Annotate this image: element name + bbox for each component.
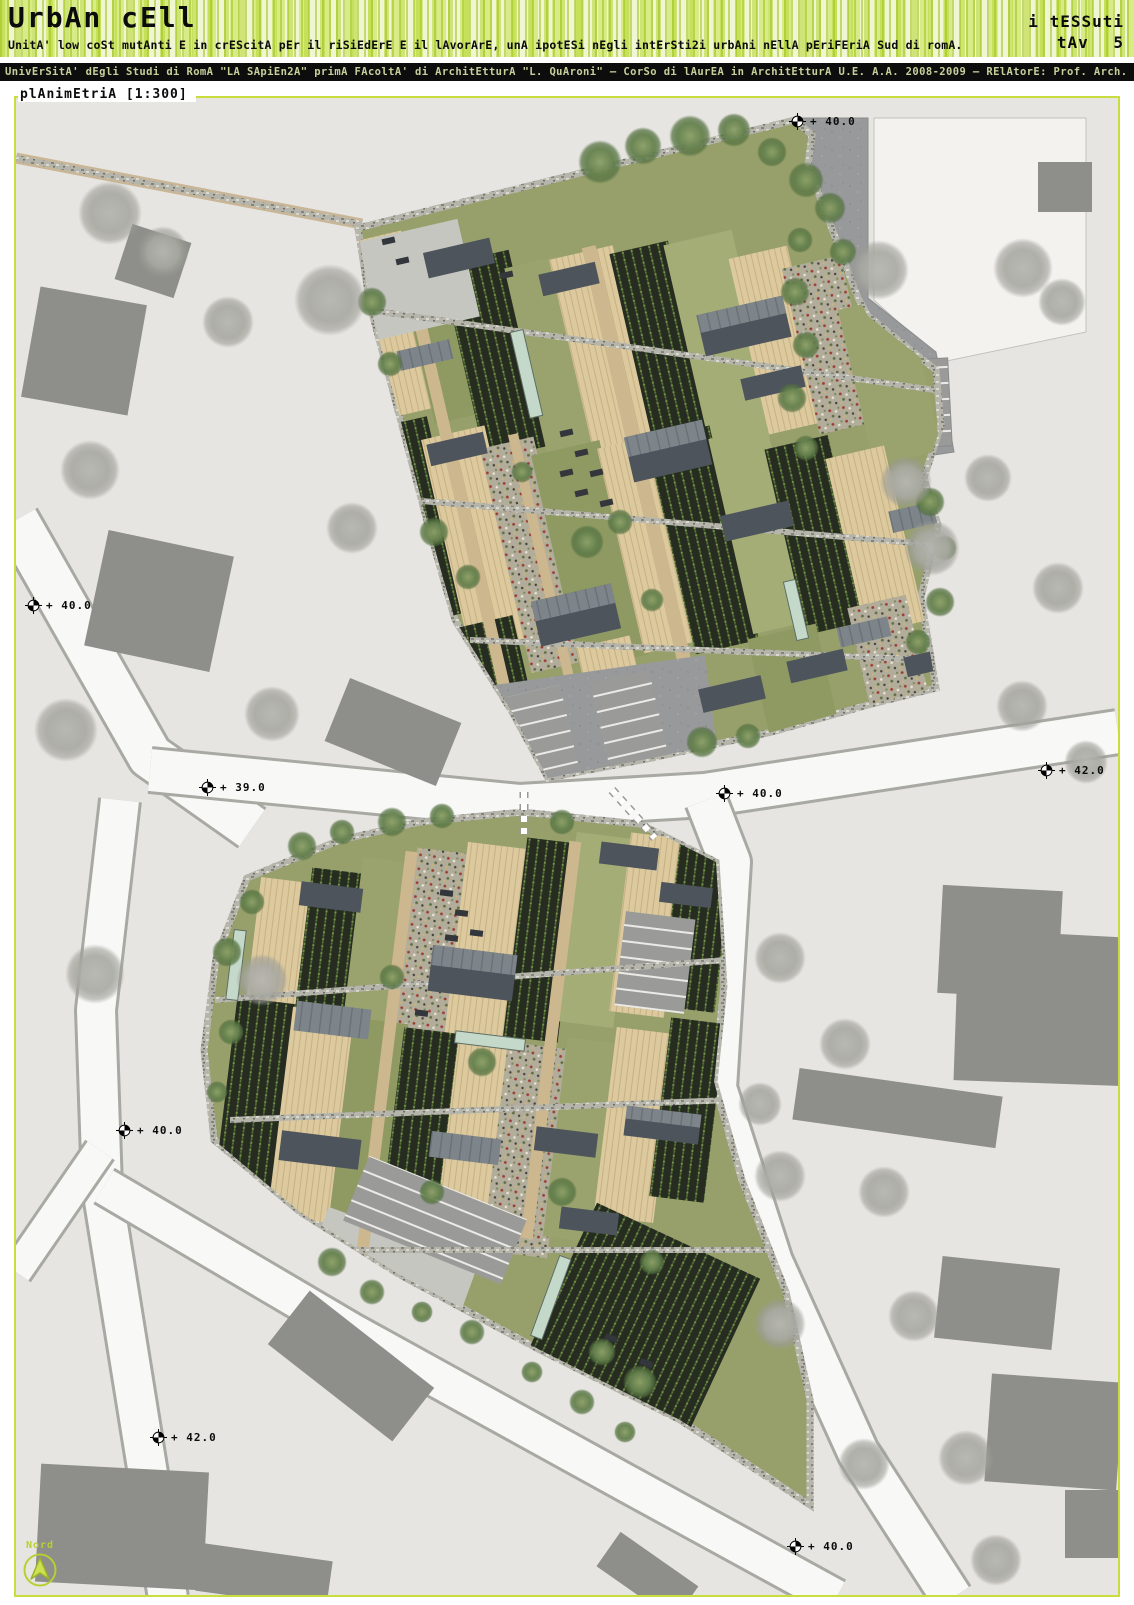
elevation-label: + 40.0 (810, 115, 856, 128)
elevation-marker: + 40.0 (789, 113, 856, 130)
credits-bar: UnivErSitA' dEgli Studi di RomA "LA SApi… (0, 63, 1134, 81)
survey-marker-icon (199, 779, 216, 796)
elevation-label: + 42.0 (171, 1431, 217, 1444)
elevation-label: + 40.0 (808, 1540, 854, 1553)
survey-marker-icon (789, 113, 806, 130)
elevation-marker: + 42.0 (1038, 762, 1105, 779)
plan-frame (14, 96, 1120, 1597)
north-label: Nord (22, 1540, 58, 1551)
north-indicator: Nord (22, 1540, 58, 1592)
series-label: i tESSuti (1028, 12, 1124, 31)
elevation-marker: + 40.0 (116, 1122, 183, 1139)
survey-marker-icon (1038, 762, 1055, 779)
elevation-marker: + 42.0 (150, 1429, 217, 1446)
survey-marker-icon (116, 1122, 133, 1139)
elevation-marker: + 40.0 (716, 785, 783, 802)
survey-marker-icon (716, 785, 733, 802)
elevation-label: + 40.0 (737, 787, 783, 800)
plan-caption: plAnimEtriA [1:300] (18, 87, 196, 102)
sheet-number: tAv 5 (1057, 33, 1124, 52)
elevation-label: + 42.0 (1059, 764, 1105, 777)
page-title: UrbAn cEll (8, 1, 197, 34)
page-subtitle: UnitA' low coSt mutAnti E in crEScitA pE… (8, 38, 963, 52)
paved-plaza (874, 118, 1086, 362)
survey-marker-icon (787, 1538, 804, 1555)
survey-marker-icon (150, 1429, 167, 1446)
elevation-label: + 40.0 (46, 599, 92, 612)
presentation-board: { "header": { "title": "UrbAn cEll", "su… (0, 0, 1134, 1605)
elevation-label: + 39.0 (220, 781, 266, 794)
elevation-marker: + 40.0 (787, 1538, 854, 1555)
elevation-marker: + 39.0 (199, 779, 266, 796)
survey-marker-icon (25, 597, 42, 614)
site-plan-map (16, 98, 1118, 1595)
elevation-marker: + 40.0 (25, 597, 92, 614)
north-arrow-icon (22, 1552, 58, 1588)
elevation-label: + 40.0 (137, 1124, 183, 1137)
